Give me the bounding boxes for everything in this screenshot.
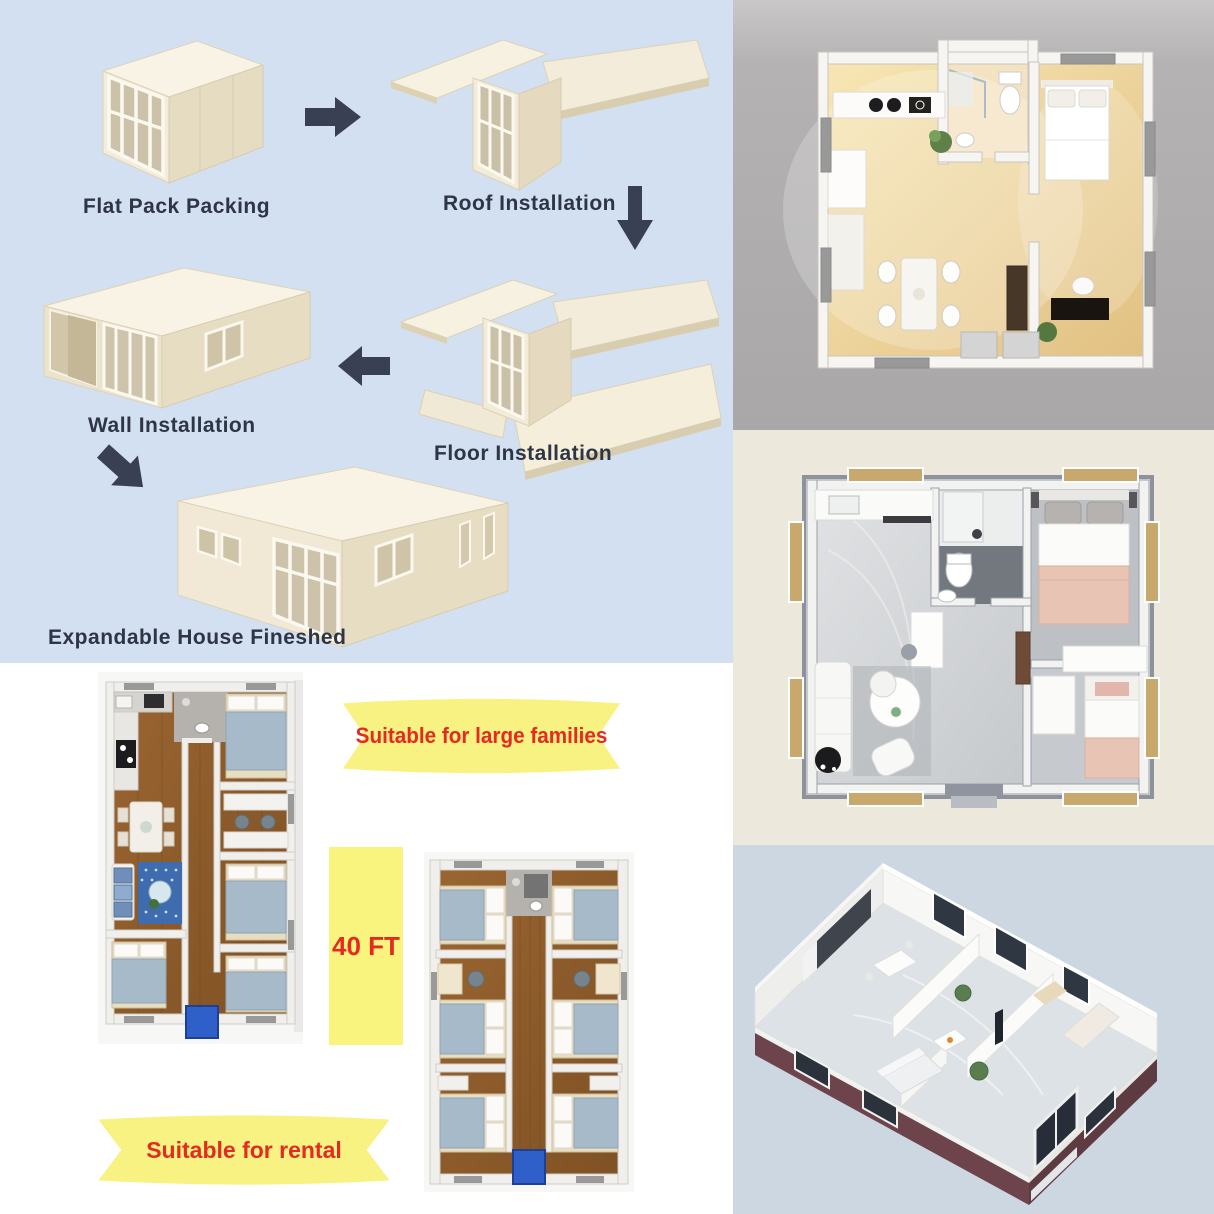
size-label-40ft: 40 FT <box>329 847 403 1045</box>
isometric-house-drawing <box>733 845 1214 1214</box>
entry-door <box>186 1006 218 1038</box>
banner-rental: Suitable for rental <box>88 1114 400 1186</box>
assembly-steps-panel: Flat Pack Packing Roof Installation Floo… <box>0 0 733 663</box>
bathroom <box>506 870 552 916</box>
arrow-left-icon <box>338 345 390 387</box>
step-label-roof: Roof Installation <box>443 192 616 216</box>
bathroom <box>174 692 228 743</box>
render-floor-plan-warm <box>733 0 1214 430</box>
finished-house-illustration <box>170 455 515 655</box>
step-label-floor: Floor Installation <box>434 442 612 466</box>
gray-floor-plan-drawing <box>733 430 1214 845</box>
step-label-finished: Expandable House Fineshed <box>48 626 346 650</box>
render-floor-plan-gray <box>733 430 1214 845</box>
step-label-flat-pack: Flat Pack Packing <box>83 195 270 219</box>
banner-large-families: Suitable for large families <box>333 697 630 775</box>
living-area <box>112 862 182 924</box>
render-isometric-house <box>733 845 1214 1214</box>
rental-layout-floor-plan <box>424 852 634 1192</box>
size-label-text: 40 FT <box>332 931 400 962</box>
entry-door <box>513 1150 545 1184</box>
arrow-down-right-icon <box>89 435 157 502</box>
wall-installation-illustration <box>38 258 318 413</box>
forty-ft-plans-panel: Suitable for large families 40 FT Suitab… <box>0 663 733 1214</box>
banner-large-families-text: Suitable for large families <box>342 697 621 775</box>
arrow-right-icon <box>305 95 361 139</box>
entry <box>945 784 1003 808</box>
step-label-wall: Wall Installation <box>88 414 256 438</box>
family-layout-floor-plan <box>98 672 303 1044</box>
warm-floor-plan-drawing <box>733 0 1214 430</box>
banner-rental-text: Suitable for rental <box>88 1114 400 1186</box>
roof-installation-illustration <box>385 20 715 210</box>
wardrobe-door <box>1016 632 1030 684</box>
product-collage: Flat Pack Packing Roof Installation Floo… <box>0 0 1214 1214</box>
arrow-down-icon <box>617 186 653 250</box>
flat-pack-illustration <box>95 25 275 195</box>
